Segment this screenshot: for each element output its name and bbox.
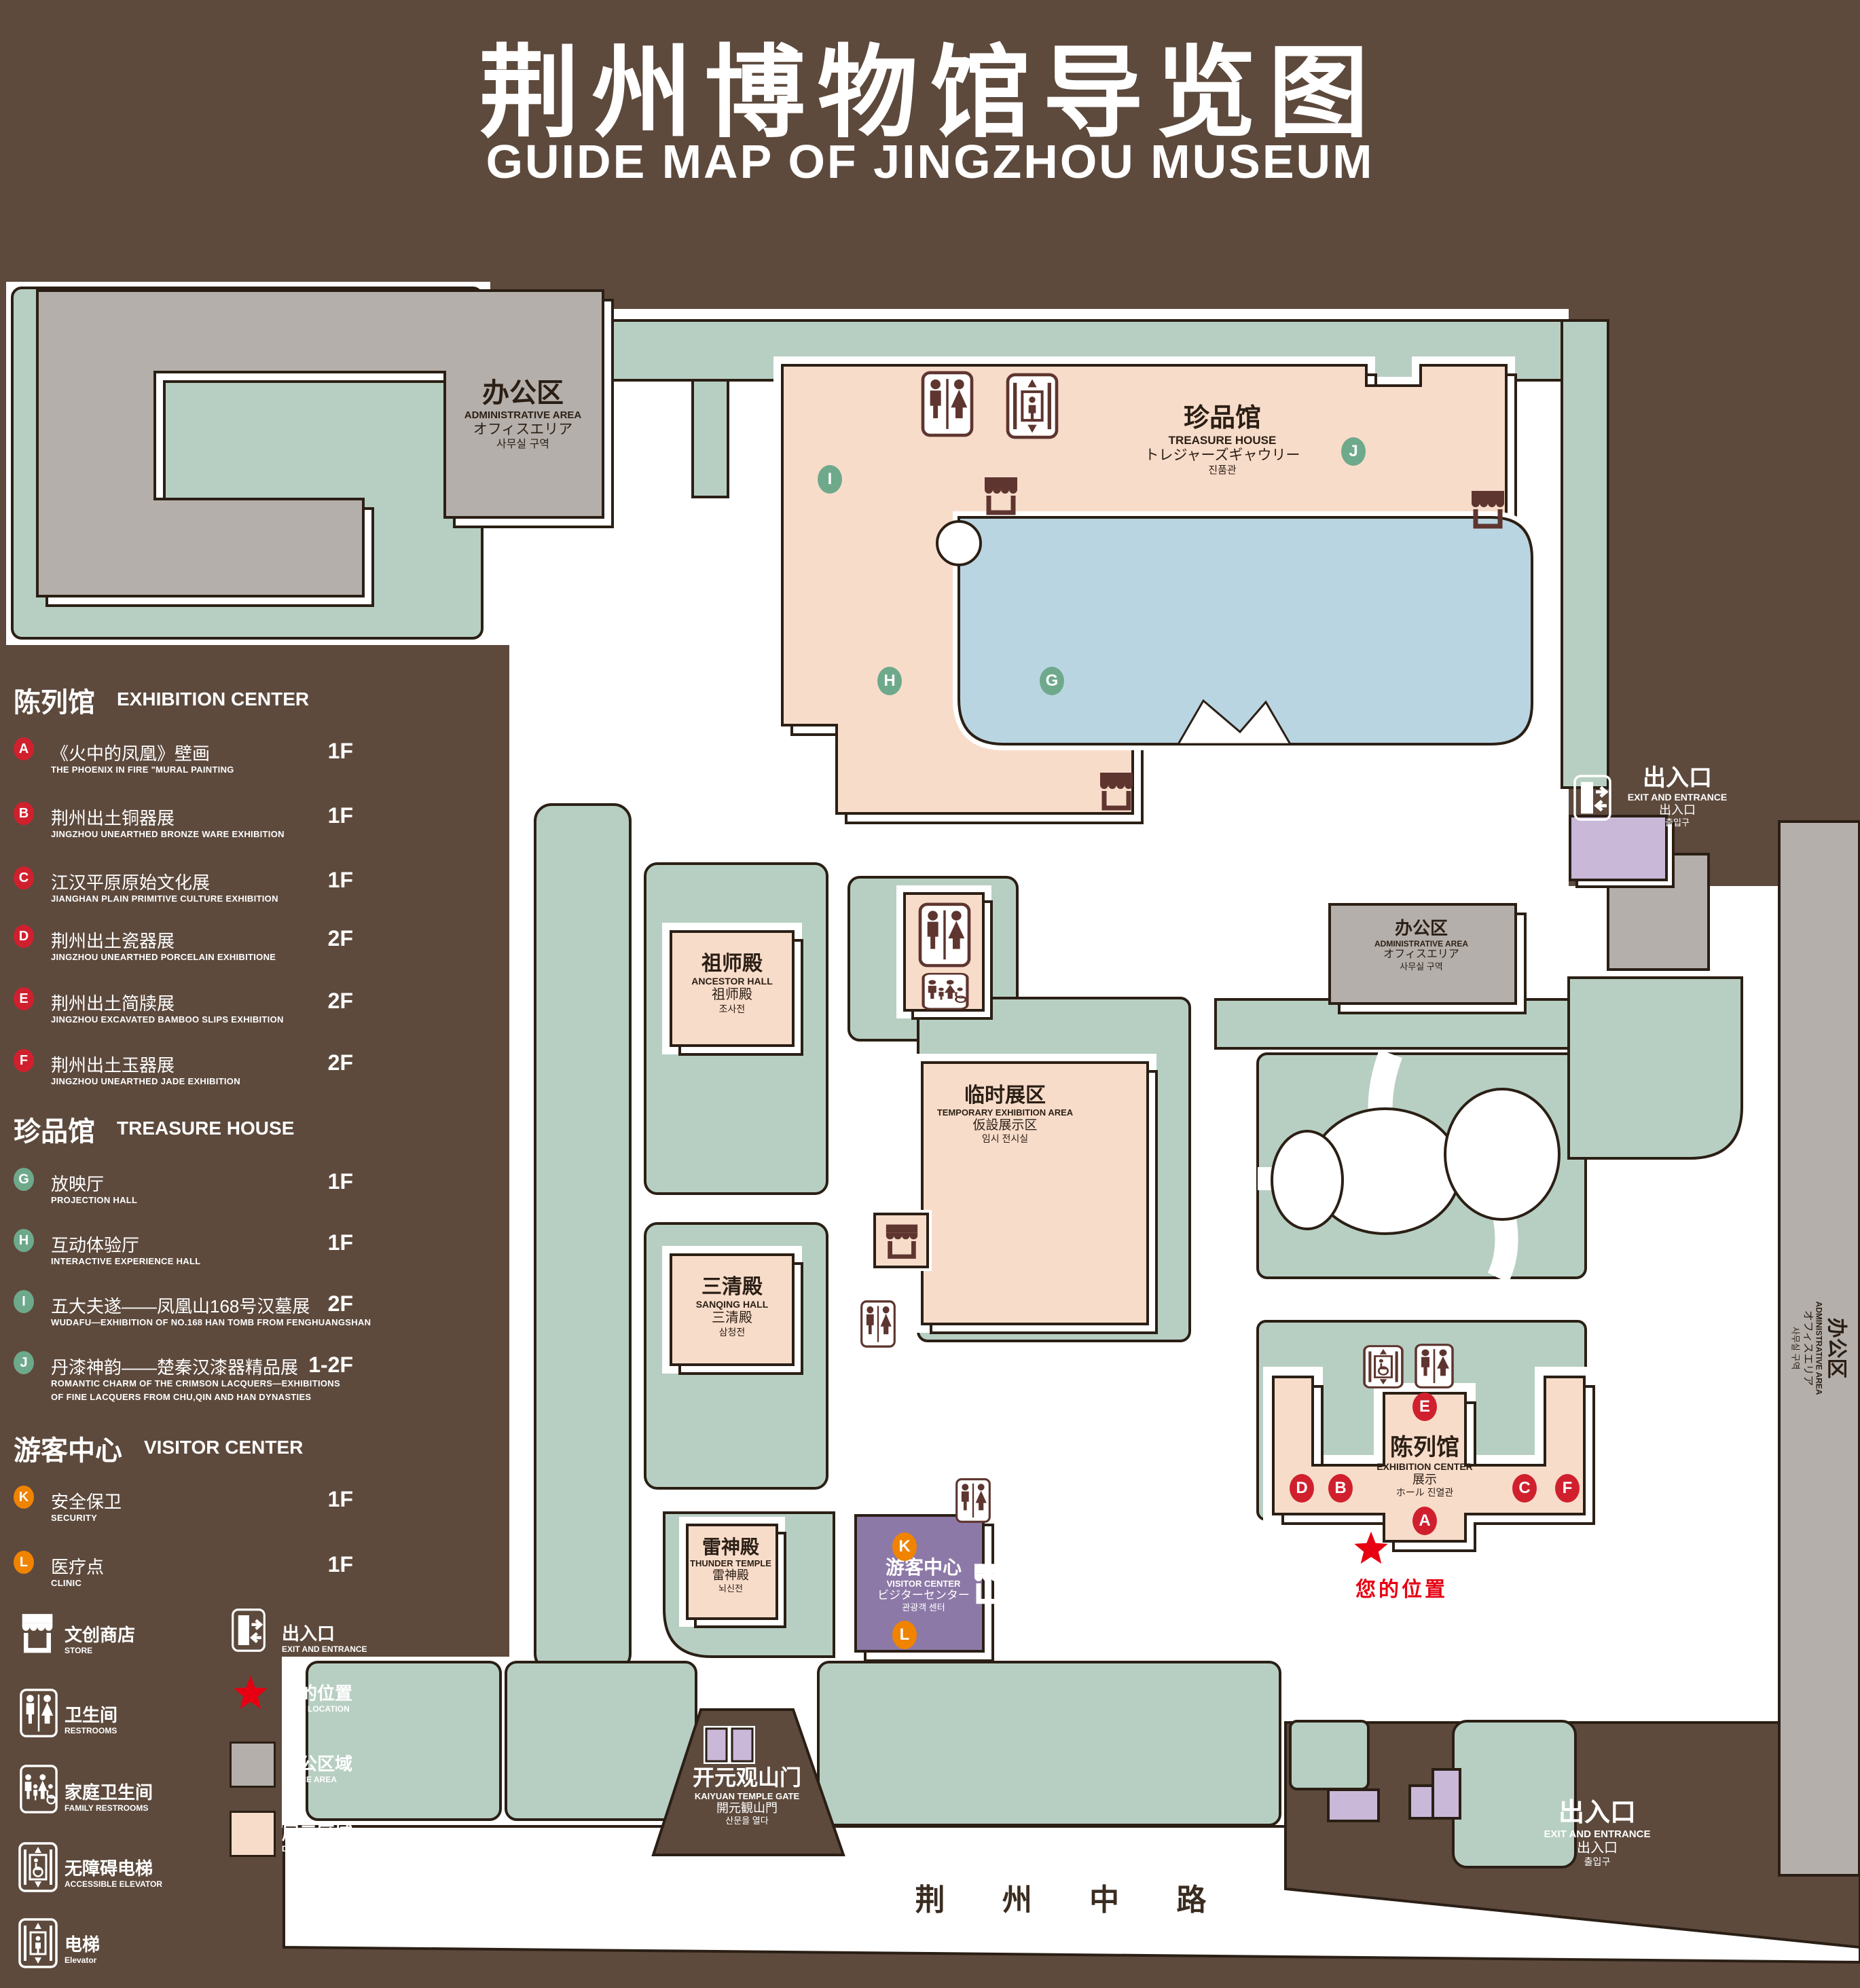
- page-subtitle: GUIDE MAP OF JINGZHOU MUSEUM: [0, 134, 1860, 189]
- your-location-label: 您的位置: [1355, 1572, 1448, 1602]
- sanqing-cn2: 三清殿: [696, 1310, 769, 1327]
- visitor-cn: 游客中心: [877, 1556, 970, 1579]
- legend-family-en: FAMILY RESTROOMS: [65, 1803, 148, 1813]
- thunder-en: THUNDER TEMPLE: [690, 1558, 771, 1568]
- legend-accessible-en: ACCESSIBLE ELEVATOR: [65, 1879, 162, 1889]
- legend-item-a-en: THE PHOENIX IN FIRE "MURAL PAINTING: [51, 765, 234, 775]
- sanqing-en: SANQING HALL: [696, 1299, 769, 1310]
- legend-item-c-floor: 1F: [292, 868, 353, 893]
- family-restroom-icon: [19, 1764, 58, 1814]
- treasure-label: 珍品馆 TREASURE HOUSE トレジャーズギャウリー 진품관: [1145, 403, 1300, 476]
- legend-item-k-floor: 1F: [292, 1487, 353, 1512]
- legend-section-exhibition-en: EXHIBITION CENTER: [117, 688, 309, 710]
- elevator-icon: [1005, 372, 1059, 440]
- store-icon: [971, 1560, 1010, 1606]
- legend-display-en: DISPLAY AREA: [282, 1844, 342, 1854]
- garden-path: [1498, 1213, 1507, 1278]
- legend-item-e-cn: 荆州出土简牍展: [51, 990, 175, 1015]
- map-marker-b: B: [1328, 1474, 1353, 1503]
- legend-item-d-floor: 2F: [292, 926, 353, 951]
- admin-tl-cn: 办公区: [464, 378, 582, 409]
- gate-jp: 開元観山門: [693, 1801, 801, 1816]
- legend-item-d-cn: 荆州出土瓷器展: [51, 927, 175, 953]
- legend-item-e-en: JINGZHOU EXCAVATED BAMBOO SLIPS EXHIBITI…: [51, 1014, 284, 1025]
- legend-item-d-en: JINGZHOU UNEARTHED PORCELAIN EXHIBITIONE: [51, 952, 276, 962]
- display-area-swatch: [230, 1811, 276, 1857]
- legend-letter-f: F: [14, 1049, 34, 1072]
- legend-item-j-cn: 丹漆神韵——楚秦汉漆器精品展: [51, 1354, 298, 1379]
- lawn-left-column: [535, 805, 630, 1670]
- pond-blob: [1445, 1089, 1559, 1219]
- map-marker-e: E: [1412, 1393, 1437, 1421]
- lawn-sliver: [693, 380, 728, 497]
- map-marker-i: I: [818, 465, 842, 494]
- exit-right-cn: 出入口: [1628, 765, 1728, 792]
- restroom-icon: [860, 1300, 896, 1348]
- map-marker-k: K: [892, 1532, 917, 1561]
- legend-letter-k: K: [14, 1486, 34, 1509]
- ancestor-en: ANCESTOR HALL: [691, 976, 773, 987]
- exit-right-kr: 출입구: [1628, 817, 1728, 828]
- exhibition-cn2: 展示: [1376, 1473, 1473, 1487]
- pond-blob: [1272, 1131, 1343, 1229]
- family-restroom-icon: [921, 972, 970, 1010]
- legend-item-h-en: INTERACTIVE EXPERIENCE HALL: [51, 1256, 200, 1266]
- location-star-icon: [232, 1674, 269, 1711]
- elevator-icon: [18, 1917, 58, 1969]
- ancestor-label: 祖师殿 ANCESTOR HALL 祖师殿 조사전: [691, 952, 773, 1014]
- gate-en: KAIYUAN TEMPLE GATE: [693, 1791, 801, 1801]
- gate-lav-2: [732, 1729, 752, 1761]
- legend-letter-c: C: [14, 866, 34, 889]
- admin-right-label: 办公区 ADMINISTRATIVE AREA オフィスエリア 사무실 구역: [1779, 822, 1859, 1875]
- legend-exit-en: EXIT AND ENTRANCE: [282, 1644, 367, 1654]
- temp-jp: 仮設展示区: [937, 1118, 1073, 1133]
- legend-item-f-floor: 2F: [292, 1050, 353, 1075]
- legend-store-en: STORE: [65, 1646, 92, 1655]
- office-area-swatch: [230, 1742, 276, 1788]
- legend-item-i-cn: 五大夫遂——凤凰山168号汉墓展: [51, 1293, 310, 1318]
- exit-right-en: EXIT AND ENTRANCE: [1628, 792, 1728, 803]
- legend-item-h-floor: 1F: [292, 1230, 353, 1255]
- legend-letter-d: D: [14, 925, 34, 948]
- lawn-bottom: [818, 1662, 1280, 1825]
- legend-section-treasure-cn: 珍品馆: [14, 1109, 95, 1149]
- legend-item-c-cn: 江汉平原原始文化展: [51, 869, 210, 894]
- legend-elevator-en: Elevator: [65, 1955, 96, 1965]
- admin-right-kr: 사무실 구역: [1790, 1302, 1801, 1395]
- legend-item-b-en: JINGZHOU UNEARTHED BRONZE WARE EXHIBITIO…: [51, 829, 285, 839]
- temp-label: 临时展区 TEMPORARY EXHIBITION AREA 仮設展示区 임시 …: [937, 1084, 1073, 1145]
- treasure-en: TREASURE HOUSE: [1145, 434, 1300, 447]
- admin-cr-kr: 사무실 구역: [1374, 961, 1468, 972]
- legend-letter-i: I: [14, 1290, 34, 1313]
- legend-item-f-cn: 荆州出土玉器展: [51, 1052, 175, 1077]
- lawn-right-block: [1569, 978, 1742, 1158]
- visitor-kr: 관광객 센터: [877, 1602, 970, 1613]
- road-label: 荆 州 中 路: [915, 1875, 1231, 1919]
- exhibition-en: EXHIBITION CENTER: [1376, 1461, 1473, 1473]
- legend-item-b-cn: 荆州出土铜器展: [51, 805, 175, 830]
- legend-item-h-cn: 互动体验厅: [51, 1232, 139, 1257]
- legend-elevator-cn: 电梯: [65, 1931, 100, 1956]
- admin-right-en: ADMINISTRATIVE AREA: [1814, 1302, 1823, 1395]
- store-icon: [1468, 487, 1508, 531]
- thunder-label: 雷神殿 THUNDER TEMPLE 雷神殿 뇌신전: [690, 1536, 771, 1594]
- legend-item-j-floor: 1-2F: [292, 1352, 353, 1378]
- map-marker-f: F: [1555, 1474, 1580, 1503]
- accessible-elevator-icon: [18, 1841, 58, 1893]
- legend-item-i-floor: 2F: [292, 1291, 353, 1317]
- legend-section-exhibition-cn: 陈列馆: [14, 680, 95, 720]
- legend-item-j-en: ROMANTIC CHARM OF THE CRIMSON LACQUERS—E…: [51, 1378, 340, 1388]
- exit-icon: [231, 1608, 266, 1653]
- admin-right-text: 办公区 ADMINISTRATIVE AREA オフィスエリア 사무실 구역: [1790, 1302, 1848, 1395]
- legend-letter-a: A: [14, 737, 34, 760]
- gate-cn: 开元观山门: [693, 1765, 801, 1791]
- legend-section-treasure-en: TREASURE HOUSE: [117, 1118, 294, 1139]
- exit-bottom-cn2: 出入口: [1544, 1841, 1651, 1857]
- legend-item-k-cn: 安全保卫: [51, 1488, 122, 1513]
- restroom-icon: [955, 1477, 991, 1524]
- visitor-label: 游客中心 VISITOR CENTER ビジターセンター 관광객 센터: [877, 1556, 970, 1613]
- temp-cn: 临时展区: [937, 1084, 1073, 1107]
- legend-item-l-en: CLINIC: [51, 1578, 81, 1588]
- legend-restroom-en: RESTROOMS: [65, 1726, 117, 1735]
- exit-bottom-en: EXIT AND ENTRANCE: [1544, 1828, 1651, 1841]
- lawn-right-column: [1562, 320, 1608, 788]
- treasure-jp: トレジャーズギャウリー: [1145, 447, 1300, 464]
- map-marker-l: L: [892, 1621, 917, 1649]
- legend-section-visitor-cn: 游客中心: [14, 1429, 122, 1468]
- temp-en: TEMPORARY EXHIBITION AREA: [937, 1107, 1073, 1118]
- sanqing-kr: 삼청전: [696, 1327, 769, 1338]
- restroom-icon: [917, 902, 972, 968]
- map-marker-d: D: [1290, 1474, 1314, 1503]
- legend-restroom-cn: 卫生间: [65, 1701, 117, 1727]
- thunder-kr: 뇌신전: [690, 1583, 771, 1594]
- gate-label: 开元观山门 KAIYUAN TEMPLE GATE 開元観山門 산문을 열다: [693, 1765, 801, 1826]
- admin-cr-jp: オフィスエリア: [1374, 949, 1468, 961]
- legend-letter-e: E: [14, 987, 34, 1010]
- legend-store-cn: 文创商店: [65, 1621, 135, 1646]
- admin-topleft-label: 办公区 ADMINISTRATIVE AREA オフィスエリア 사무실 구역: [464, 378, 582, 452]
- lawn-bl-2: [506, 1662, 696, 1820]
- exhibition-label: 陈列馆 EXHIBITION CENTER 展示 ホール 진열관: [1376, 1434, 1473, 1498]
- legend-location-cn: 您的位置: [282, 1680, 352, 1705]
- sanqing-label: 三清殿 SANQING HALL 三清殿 삼청전: [696, 1275, 769, 1338]
- lav-br-1: [1328, 1790, 1379, 1821]
- ancestor-kr: 조사전: [691, 1004, 773, 1015]
- sanqing-cn: 三清殿: [696, 1275, 769, 1299]
- legend-letter-j: J: [14, 1351, 34, 1374]
- legend-letter-l: L: [14, 1551, 34, 1574]
- accessible-elevator-icon: [1362, 1344, 1404, 1389]
- admin-right-jp: オフィスエリア: [1801, 1302, 1814, 1395]
- exit-right-label: 出入口 EXIT AND ENTRANCE 出入口 출입구: [1628, 765, 1728, 828]
- legend-letter-b: B: [14, 802, 34, 825]
- thunder-cn: 雷神殿: [690, 1536, 771, 1558]
- admin-tl-jp: オフィスエリア: [464, 422, 582, 439]
- admin-cr-cn: 办公区: [1374, 918, 1468, 939]
- legend-item-g-cn: 放映厅: [51, 1171, 104, 1196]
- admin-cr-en: ADMINISTRATIVE AREA: [1374, 939, 1468, 949]
- exit-bottom-cn: 出入口: [1544, 1798, 1651, 1828]
- map-marker-g: G: [1040, 667, 1064, 695]
- legend-item-l-floor: 1F: [292, 1552, 353, 1577]
- exit-icon: [1573, 774, 1612, 822]
- temp-kr: 임시 전시실: [937, 1133, 1073, 1145]
- restroom-icon: [19, 1688, 58, 1738]
- exhibition-cn: 陈列馆: [1376, 1434, 1473, 1461]
- legend-display-cn: 展示区域: [282, 1820, 352, 1845]
- exit-bottom-label: 出入口 EXIT AND ENTRANCE 出入口 출입구: [1544, 1798, 1651, 1868]
- admin-center-label: 办公区 ADMINISTRATIVE AREA オフィスエリア 사무실 구역: [1374, 918, 1468, 972]
- legend-office-en: OFFICE AREA: [282, 1775, 337, 1784]
- lake-island: [937, 521, 981, 565]
- gate-kr: 산문을 열다: [693, 1816, 801, 1826]
- your-location-star-icon: [1353, 1530, 1389, 1566]
- legend-item-b-floor: 1F: [292, 803, 353, 828]
- legend-item-f-en: JINGZHOU UNEARTHED JADE EXHIBITION: [51, 1076, 240, 1086]
- legend-item-l-cn: 医疗点: [51, 1553, 104, 1579]
- lav-br-3: [1433, 1769, 1460, 1818]
- store-icon: [19, 1610, 56, 1655]
- legend-item-i-en: WUDAFU—EXHIBITION OF NO.168 HAN TOMB FRO…: [51, 1317, 371, 1327]
- map-marker-j: J: [1341, 437, 1366, 466]
- legend-item-a-floor: 1F: [292, 739, 353, 764]
- legend-section-visitor-en: VISITOR CENTER: [144, 1437, 303, 1458]
- legend-office-cn: 办公区域: [282, 1750, 352, 1775]
- legend-exit-cn: 出入口: [282, 1620, 335, 1645]
- legend-item-g-floor: 1F: [292, 1169, 353, 1194]
- legend-item-g-en: PROJECTION HALL: [51, 1195, 137, 1205]
- legend-family-cn: 家庭卫生间: [65, 1779, 153, 1804]
- admin-tl-en: ADMINISTRATIVE AREA: [464, 409, 582, 422]
- store-icon: [883, 1221, 921, 1261]
- lawn-br-1: [1290, 1721, 1368, 1789]
- legend-item-j-en2: OF FINE LACQUERS FROM CHU,QIN AND HAN DY…: [51, 1392, 311, 1402]
- thunder-cn2: 雷神殿: [690, 1568, 771, 1583]
- legend-item-e-floor: 2F: [292, 989, 353, 1014]
- exit-right-cn2: 出入口: [1628, 803, 1728, 817]
- gate-lav-1: [706, 1729, 727, 1761]
- store-icon: [981, 474, 1021, 517]
- exit-bottom-kr: 출입구: [1544, 1856, 1651, 1868]
- legend-location-en: YOUR LOCATION: [282, 1704, 350, 1714]
- legend-item-a-cn: 《火中的凤凰》壁画: [51, 740, 210, 765]
- guide-map-poster: 荆州博物馆导览图 GUIDE MAP OF JINGZHOU MUSEUM 陈列…: [0, 0, 1860, 1988]
- legend-item-k-en: SECURITY: [51, 1513, 97, 1523]
- map-marker-c: C: [1512, 1474, 1537, 1503]
- map-marker-h: H: [877, 667, 902, 695]
- visitor-jp: ビジターセンター: [877, 1589, 970, 1602]
- exhibition-jkr: ホール 진열관: [1376, 1487, 1473, 1498]
- lake: [959, 517, 1532, 744]
- restroom-icon: [1414, 1343, 1455, 1389]
- legend-accessible-cn: 无障碍电梯: [65, 1855, 153, 1880]
- treasure-cn: 珍品馆: [1145, 403, 1300, 434]
- visitor-en: VISITOR CENTER: [877, 1579, 970, 1589]
- restroom-icon: [920, 370, 974, 438]
- treasure-kr: 진품관: [1145, 464, 1300, 477]
- admin-tl-kr: 사무실 구역: [464, 439, 582, 452]
- admin-right-cn: 办公区: [1824, 1302, 1848, 1395]
- map-marker-a: A: [1412, 1507, 1437, 1535]
- ancestor-cn: 祖师殿: [691, 952, 773, 976]
- legend-letter-g: G: [14, 1168, 34, 1191]
- legend-item-c-en: JIANGHAN PLAIN PRIMITIVE CULTURE EXHIBIT…: [51, 894, 278, 904]
- store-icon: [1097, 769, 1136, 813]
- ancestor-cn2: 祖师殿: [691, 987, 773, 1004]
- legend-letter-h: H: [14, 1229, 34, 1252]
